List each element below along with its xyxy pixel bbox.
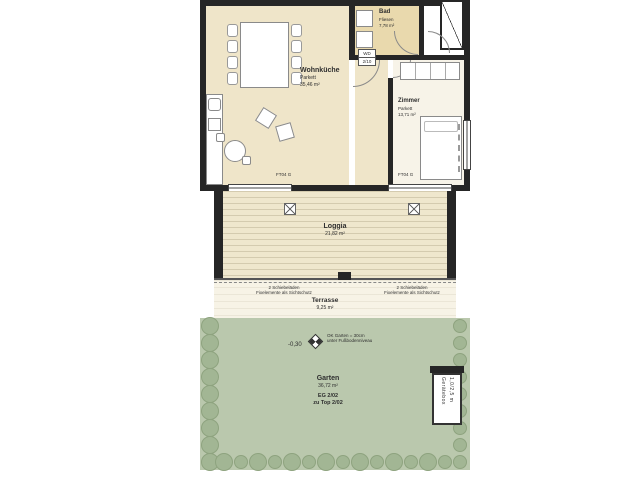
- loggia-area: 21,82 m²: [300, 231, 370, 238]
- shutter-note-right-2: Fixelemente als Sichtschutz: [372, 290, 452, 295]
- label-loggia: Loggia 21,82 m²: [300, 222, 370, 238]
- door-tag-size-text: 2/10: [363, 59, 372, 64]
- bad-floor: Fliesen: [379, 17, 394, 23]
- label-terrasse: Terrasse 9,25 m²: [295, 297, 355, 312]
- terrasse-name: Terrasse: [295, 297, 355, 305]
- garten-name: Garten: [296, 374, 360, 383]
- shed-label-1: Gerätebox: [440, 377, 446, 423]
- bad-area: 7,78 m²: [379, 23, 394, 29]
- level-note-2: unter Fußbodenniveau: [327, 338, 372, 343]
- shutter-note-left: 2 Schiebeläden Fixelemente als Sichtschu…: [244, 285, 324, 296]
- wohnkueche-name: Wohnküche: [300, 66, 340, 75]
- chair: [227, 56, 238, 69]
- bed: [420, 116, 462, 180]
- window-label-left: FT04 G: [276, 172, 291, 177]
- window-label-right: FT04 G: [398, 172, 413, 177]
- wall-bad-left: [349, 0, 355, 60]
- chair: [227, 72, 238, 85]
- loggia-wall-left: [214, 191, 223, 280]
- shed-box: Gerätebox 1,0/2,5 m: [432, 373, 462, 425]
- shutter-note-right: 2 Schiebeläden Fixelemente als Sichtschu…: [372, 285, 452, 296]
- kitchen-hob: [208, 118, 221, 131]
- garten-unit: EG 2/02: [296, 393, 360, 400]
- dryer: [356, 31, 373, 48]
- door-tag-size: 2/10: [358, 57, 376, 66]
- wall-top: [200, 0, 470, 6]
- wohnkueche-area: 35,46 m²: [300, 82, 340, 89]
- door-tag-type-text: WD: [363, 51, 371, 56]
- shed-label-2: 1,0/2,5 m: [448, 377, 454, 423]
- window-zimmer-right: [463, 120, 471, 170]
- label-wohnkueche: Wohnküche Parkett 35,46 m²: [300, 66, 340, 88]
- shed-top-bar: [430, 366, 464, 373]
- label-zimmer: Zimmer Parkett 13,71 m²: [398, 98, 420, 117]
- small-chair: [216, 133, 225, 142]
- downpipe-mark: [408, 203, 420, 215]
- label-bad: Bad Fliesen 7,78 m²: [379, 9, 394, 28]
- label-garten: Garten 36,72 m² EG 2/02 zu Top 2/02: [296, 374, 360, 407]
- chair: [227, 40, 238, 53]
- shutter-track: [214, 282, 456, 283]
- terrasse-area: 9,25 m²: [295, 305, 355, 312]
- level-value: -0,30: [288, 342, 302, 349]
- wall-bad-flur: [419, 0, 424, 57]
- floor-plan: WD 2/10 Wohnküche Parkett 35,46 m² Bad F…: [0, 0, 640, 480]
- chair: [227, 24, 238, 37]
- radiator: [458, 124, 460, 172]
- zimmer-area: 13,71 m²: [398, 112, 420, 118]
- shutter-note-left-2: Fixelemente als Sichtschutz: [244, 290, 324, 295]
- downpipe-mark: [284, 203, 296, 215]
- wardrobe: [400, 62, 460, 80]
- small-chair: [242, 156, 251, 165]
- zimmer-name: Zimmer: [398, 98, 420, 106]
- level-note: OK Garten = 30cm unter Fußbodenniveau: [327, 333, 372, 344]
- washer: [356, 10, 373, 27]
- bad-name: Bad: [379, 9, 394, 17]
- kitchen-sink: [208, 98, 221, 111]
- loggia-name: Loggia: [300, 222, 370, 231]
- chair: [291, 24, 302, 37]
- loggia-wall-right: [447, 191, 456, 280]
- garten-assignment: zu Top 2/02: [296, 400, 360, 407]
- chair: [291, 40, 302, 53]
- wall-corridor-zimmer: [388, 78, 393, 185]
- dining-table: [240, 22, 289, 88]
